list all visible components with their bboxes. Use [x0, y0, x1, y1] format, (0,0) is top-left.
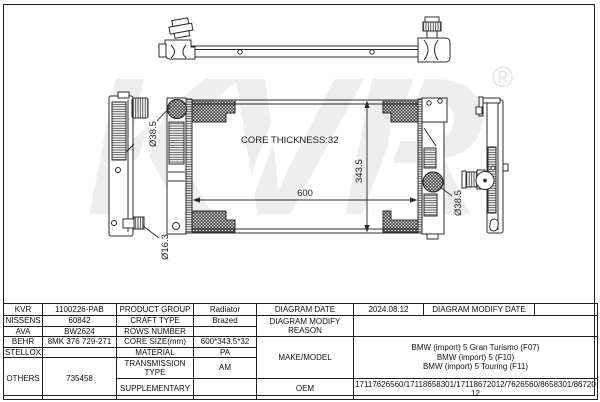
- oem-value: 17117626560/17118658301/17118672012/7626…: [354, 379, 598, 400]
- make-model-line: BMW (import) 5 Gran Turismo (F07): [355, 343, 596, 353]
- spec-table: KVR 1100226-PAB PRODUCT GROUP Radiator D…: [3, 303, 598, 400]
- supplementary-label: SUPPLEMENTARY: [117, 379, 194, 400]
- make-model-label: MAKE/MODEL: [257, 337, 354, 379]
- registered-trademark-icon: ®: [492, 62, 513, 94]
- diagram-modify-reason-value: [354, 316, 598, 337]
- rows-number-label: ROWS NUMBER: [117, 326, 194, 337]
- diagram-date-label: DIAGRAM DATE: [257, 304, 354, 316]
- core-size-label: CORE SIZE(mm): [117, 337, 194, 348]
- brand-ava-label: AVA: [4, 326, 43, 337]
- diagram-modify-date-value: [535, 304, 598, 316]
- brand-stellox-label: STELLOX: [4, 347, 43, 358]
- core-thickness-label: CORE THICKNESS:32: [241, 135, 339, 146]
- diagram-modify-reason-label: DIAGRAM MODIFY REASON: [257, 316, 354, 337]
- core-size-value: 600*343.5*32: [194, 337, 257, 348]
- supplementary-value: [194, 379, 257, 400]
- brand-nissens-value: 60842: [43, 316, 117, 327]
- product-group-value: Radiator: [194, 304, 257, 316]
- oem-label: OEM: [257, 379, 354, 400]
- inlet-port: [168, 100, 187, 119]
- material-value: PA: [194, 347, 257, 358]
- rows-number-value: [194, 326, 257, 337]
- brand-behr-value: 8MK 376 729-271: [43, 337, 117, 348]
- transmission-type-label: TRANSMISSION TYPE: [117, 358, 194, 379]
- table-row: NISSENS 60842 CRAFT TYPE Brazed DIAGRAM …: [4, 316, 598, 327]
- brand-others-value: 735458: [43, 358, 117, 400]
- brand-ava-value: BW2624: [43, 326, 117, 337]
- dim-core-width: 600: [297, 188, 313, 199]
- radiator-diagram-sheet: { "drawing": { "core_thickness_label": "…: [0, 0, 600, 402]
- brand-others-label: OTHERS: [4, 358, 43, 400]
- diagram-date-value: 2024.08.12: [354, 304, 424, 316]
- dim-outlet-diameter: Ø38.5: [453, 190, 464, 216]
- brand-kvr-value: 1100226-PAB: [43, 304, 117, 316]
- make-model-value: BMW (import) 5 Gran Turismo (F07) BMW (i…: [354, 337, 598, 379]
- material-label: MATERIAL: [117, 347, 194, 358]
- transmission-type-value: AM: [194, 358, 257, 379]
- diagram-modify-date-label: DIAGRAM MODIFY DATE: [424, 304, 535, 316]
- make-model-line: BMW (import) 5 (F10): [355, 353, 596, 363]
- outlet-port: [423, 172, 443, 192]
- dim-inlet-diameter: Ø38.5: [148, 121, 159, 147]
- brand-kvr-label: KVR: [4, 304, 43, 316]
- make-model-line: BMW (import) 5 Touring (F11): [355, 362, 596, 372]
- brand-behr-label: BEHR: [4, 337, 43, 348]
- radiator-technical-drawing: KVR ®: [0, 0, 600, 303]
- craft-type-value: Brazed: [194, 316, 257, 327]
- brand-nissens-label: NISSENS: [4, 316, 43, 327]
- brand-stellox-value: [43, 347, 117, 358]
- dim-drain-diameter: Ø16.3: [160, 234, 171, 260]
- product-group-label: PRODUCT GROUP: [117, 304, 194, 316]
- dim-core-height: 343.5: [354, 159, 365, 183]
- table-row: KVR 1100226-PAB PRODUCT GROUP Radiator D…: [4, 304, 598, 316]
- craft-type-label: CRAFT TYPE: [117, 316, 194, 327]
- table-row: BEHR 8MK 376 729-271 CORE SIZE(mm) 600*3…: [4, 337, 598, 348]
